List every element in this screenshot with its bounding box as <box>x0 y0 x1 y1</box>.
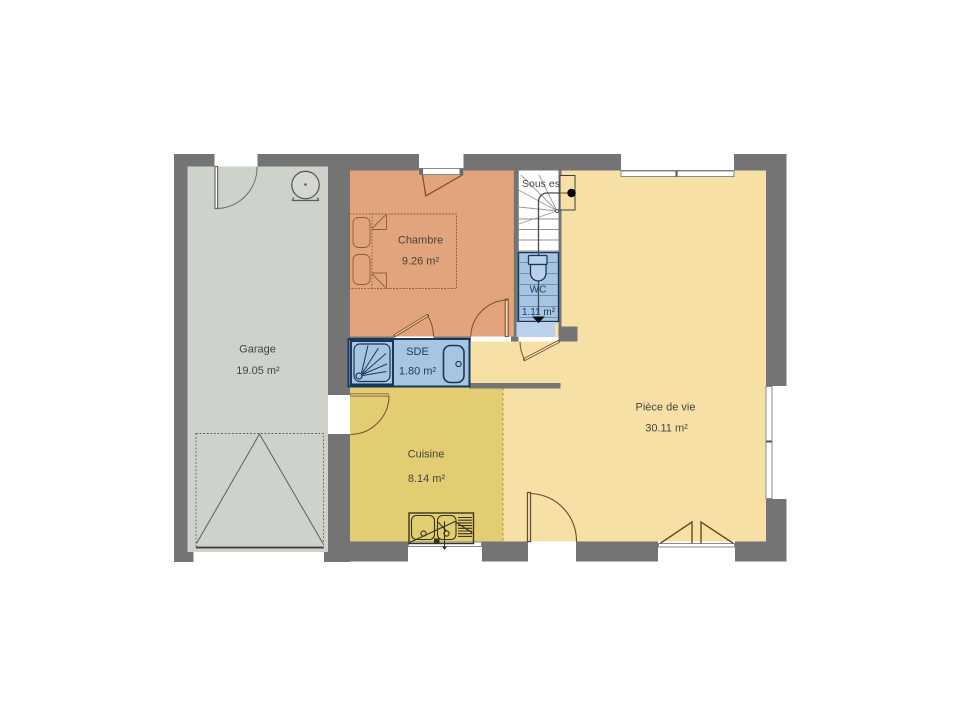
svg-text:Pièce de vie: Pièce de vie <box>636 402 696 414</box>
svg-text:19.05 m²: 19.05 m² <box>236 365 280 377</box>
svg-text:1.80 m²: 1.80 m² <box>399 366 437 378</box>
svg-text:9.26 m²: 9.26 m² <box>402 256 440 268</box>
svg-text:Cuisine: Cuisine <box>408 449 445 461</box>
svg-text:Sous es: Sous es <box>522 178 560 190</box>
svg-text:WC: WC <box>530 285 547 296</box>
svg-text:Garage: Garage <box>239 344 276 356</box>
svg-text:1.11 m²: 1.11 m² <box>522 307 556 318</box>
svg-text:30.11 m²: 30.11 m² <box>645 423 688 435</box>
svg-text:8.14 m²: 8.14 m² <box>408 473 446 485</box>
svg-text:Chambre: Chambre <box>398 235 443 247</box>
svg-text:SDE: SDE <box>406 346 429 358</box>
